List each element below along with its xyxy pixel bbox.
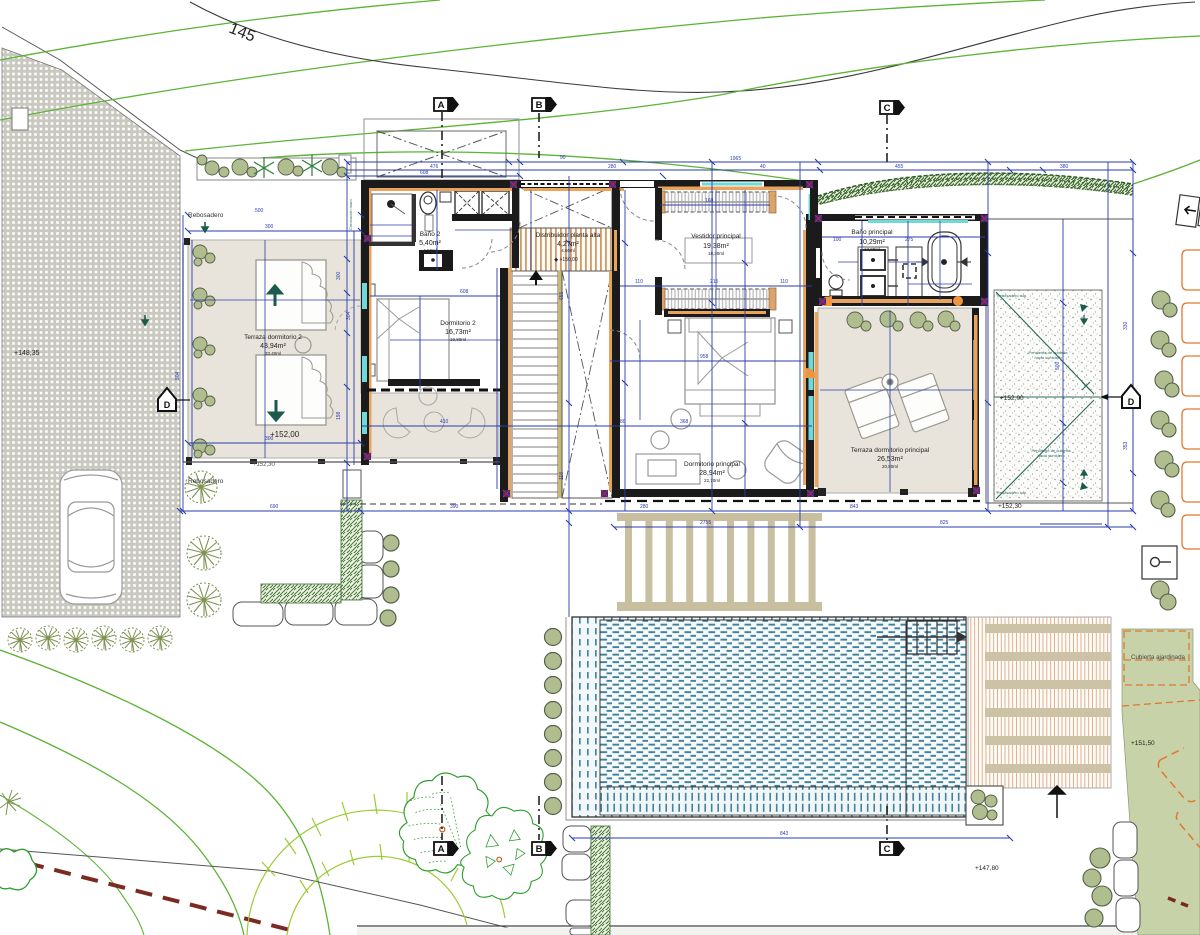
svg-text:Dormitorio 2: Dormitorio 2 [440, 320, 476, 327]
svg-text:843: 843 [850, 504, 859, 510]
svg-text:33,40ml: 33,40ml [265, 351, 281, 356]
svg-text:160: 160 [705, 198, 714, 204]
svg-text:275: 275 [905, 237, 914, 243]
svg-text:43,94m²: 43,94m² [260, 343, 286, 350]
svg-text:110: 110 [635, 279, 643, 285]
svg-text:304: 304 [346, 311, 352, 320]
svg-text:B: B [536, 100, 543, 111]
svg-text:80: 80 [620, 419, 626, 425]
svg-text:Dormitorio principal: Dormitorio principal [684, 461, 741, 468]
svg-text:+152,30: +152,30 [998, 503, 1022, 510]
svg-text:18,30ml: 18,30ml [708, 251, 724, 256]
svg-text:20,80ml: 20,80ml [882, 464, 898, 469]
svg-text:+151,50: +151,50 [1131, 740, 1155, 747]
svg-text:B: B [536, 844, 543, 855]
svg-text:500: 500 [255, 208, 264, 214]
svg-text:476: 476 [430, 164, 439, 170]
svg-text:+152,00: +152,00 [270, 430, 300, 439]
svg-text:690: 690 [270, 504, 279, 510]
svg-text:455: 455 [895, 164, 904, 170]
svg-text:608: 608 [460, 289, 469, 295]
svg-text:410: 410 [440, 419, 449, 425]
svg-text:Rebosadero: Rebosadero [188, 478, 224, 485]
svg-text:Terraza dormitorio principal: Terraza dormitorio principal [851, 447, 930, 454]
svg-text:100: 100 [833, 237, 842, 243]
svg-text:368: 368 [680, 419, 689, 425]
svg-text:+152,30: +152,30 [253, 462, 276, 468]
svg-text:Rebosadero sup.: Rebosadero sup. [997, 293, 1027, 298]
svg-text:5,40m²: 5,40m² [419, 240, 441, 247]
svg-text:958: 958 [700, 354, 709, 360]
svg-text:390: 390 [450, 504, 459, 510]
svg-text:608: 608 [420, 170, 429, 176]
svg-text:D: D [1128, 397, 1135, 407]
svg-text:Rebosadero: Rebosadero [188, 212, 224, 219]
svg-text:Cubierta ajardinada: Cubierta ajardinada [1131, 654, 1186, 661]
svg-text:4,60ml: 4,60ml [561, 248, 575, 253]
svg-text:C: C [884, 844, 891, 855]
svg-text:28,94m²: 28,94m² [699, 470, 725, 477]
svg-text:16,73m²: 16,73m² [445, 329, 471, 336]
svg-text:110: 110 [780, 279, 788, 285]
svg-text:1965: 1965 [730, 156, 741, 162]
svg-text:280: 280 [608, 164, 617, 170]
svg-text:26,53m²: 26,53m² [877, 456, 903, 463]
svg-text:A: A [438, 100, 445, 111]
svg-text:10,29m²: 10,29m² [859, 239, 885, 246]
svg-text:Terraza dormitorio 2: Terraza dormitorio 2 [244, 334, 302, 341]
svg-text:40: 40 [760, 164, 766, 170]
svg-text:4,50ml: 4,50ml [423, 248, 437, 253]
svg-text:353: 353 [1123, 441, 1129, 450]
svg-text:D: D [164, 400, 171, 410]
svg-text:215: 215 [710, 279, 719, 285]
svg-text:hacia sumidero: hacia sumidero [1034, 355, 1062, 360]
svg-text:4,27m²: 4,27m² [557, 241, 579, 248]
svg-text:500: 500 [1055, 361, 1061, 370]
svg-text:A: A [438, 844, 445, 855]
svg-text:+147,80: +147,80 [975, 865, 999, 872]
svg-text:Distribuidor planta alta: Distribuidor planta alta [536, 232, 601, 239]
svg-text:C: C [884, 103, 891, 114]
svg-text:◆ +150,00: ◆ +150,00 [554, 257, 578, 263]
svg-text:843: 843 [780, 831, 789, 837]
svg-text:380: 380 [1060, 164, 1069, 170]
svg-text:118: 118 [559, 472, 565, 480]
svg-text:17,00ml: 17,00ml [864, 247, 880, 252]
svg-text:+152,00: +152,00 [1000, 395, 1024, 402]
svg-text:504: 504 [175, 371, 181, 380]
svg-text:Rebosadero sup.: Rebosadero sup. [997, 490, 1027, 495]
svg-text:hacia sumidero: hacia sumidero [1037, 453, 1065, 458]
svg-text:19,38m²: 19,38m² [703, 243, 729, 250]
svg-text:22,70ml: 22,70ml [704, 478, 720, 483]
svg-text:90: 90 [560, 155, 566, 161]
svg-text:Baño principal: Baño principal [851, 229, 893, 236]
svg-text:Vestidor principal: Vestidor principal [691, 233, 741, 240]
svg-text:825: 825 [940, 520, 949, 526]
svg-text:300: 300 [336, 271, 342, 280]
svg-text:2755: 2755 [700, 520, 711, 526]
svg-text:198: 198 [336, 411, 342, 420]
svg-text:+148,35: +148,35 [14, 350, 40, 357]
svg-text:655: 655 [559, 291, 565, 300]
svg-text:19,80ml: 19,80ml [450, 337, 466, 342]
svg-text:300: 300 [265, 224, 274, 230]
svg-text:330: 330 [1123, 321, 1129, 330]
svg-text:Coronación muro: Coronación muro [348, 199, 353, 230]
svg-text:280: 280 [640, 504, 649, 510]
svg-text:Baño 2: Baño 2 [420, 231, 441, 238]
